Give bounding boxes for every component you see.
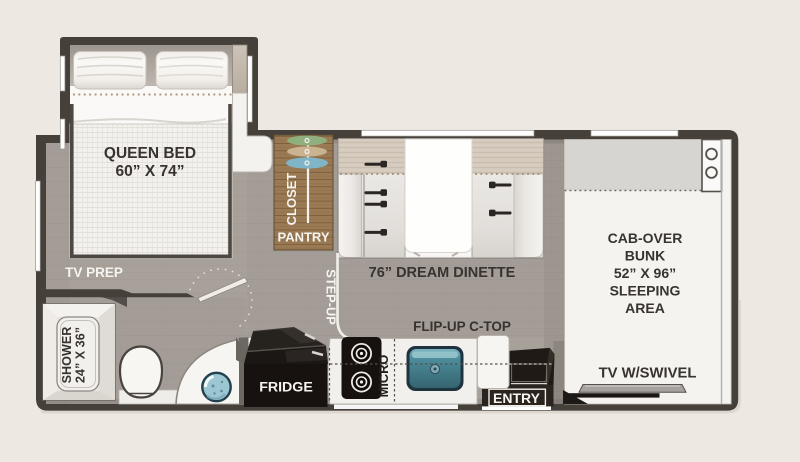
svg-text:CLOSET: CLOSET	[284, 173, 299, 226]
svg-text:24” X 36”: 24” X 36”	[74, 327, 88, 383]
svg-text:PANTRY: PANTRY	[278, 230, 330, 245]
svg-text:ENTRY: ENTRY	[493, 390, 541, 406]
svg-text:SHOWER: SHOWER	[60, 327, 74, 384]
svg-text:76” DREAM DINETTE: 76” DREAM DINETTE	[369, 265, 516, 281]
svg-text:FRIDGE: FRIDGE	[259, 380, 313, 396]
svg-text:FLIP-UP C-TOP: FLIP-UP C-TOP	[413, 319, 511, 334]
svg-text:QUEEN BED: QUEEN BED	[104, 145, 196, 162]
svg-text:STEP-UP: STEP-UP	[324, 269, 339, 325]
svg-text:SLEEPING: SLEEPING	[610, 283, 681, 299]
svg-text:BUNK: BUNK	[625, 248, 665, 264]
svg-text:52” X 96”: 52” X 96”	[614, 265, 676, 281]
svg-text:AREA: AREA	[625, 300, 665, 316]
svg-text:TV W/SWIVEL: TV W/SWIVEL	[599, 366, 697, 382]
svg-text:MICRO: MICRO	[376, 355, 391, 398]
svg-text:60” X 74”: 60” X 74”	[116, 163, 185, 180]
svg-text:CAB-OVER: CAB-OVER	[608, 230, 683, 246]
svg-text:TV PREP: TV PREP	[65, 265, 123, 280]
